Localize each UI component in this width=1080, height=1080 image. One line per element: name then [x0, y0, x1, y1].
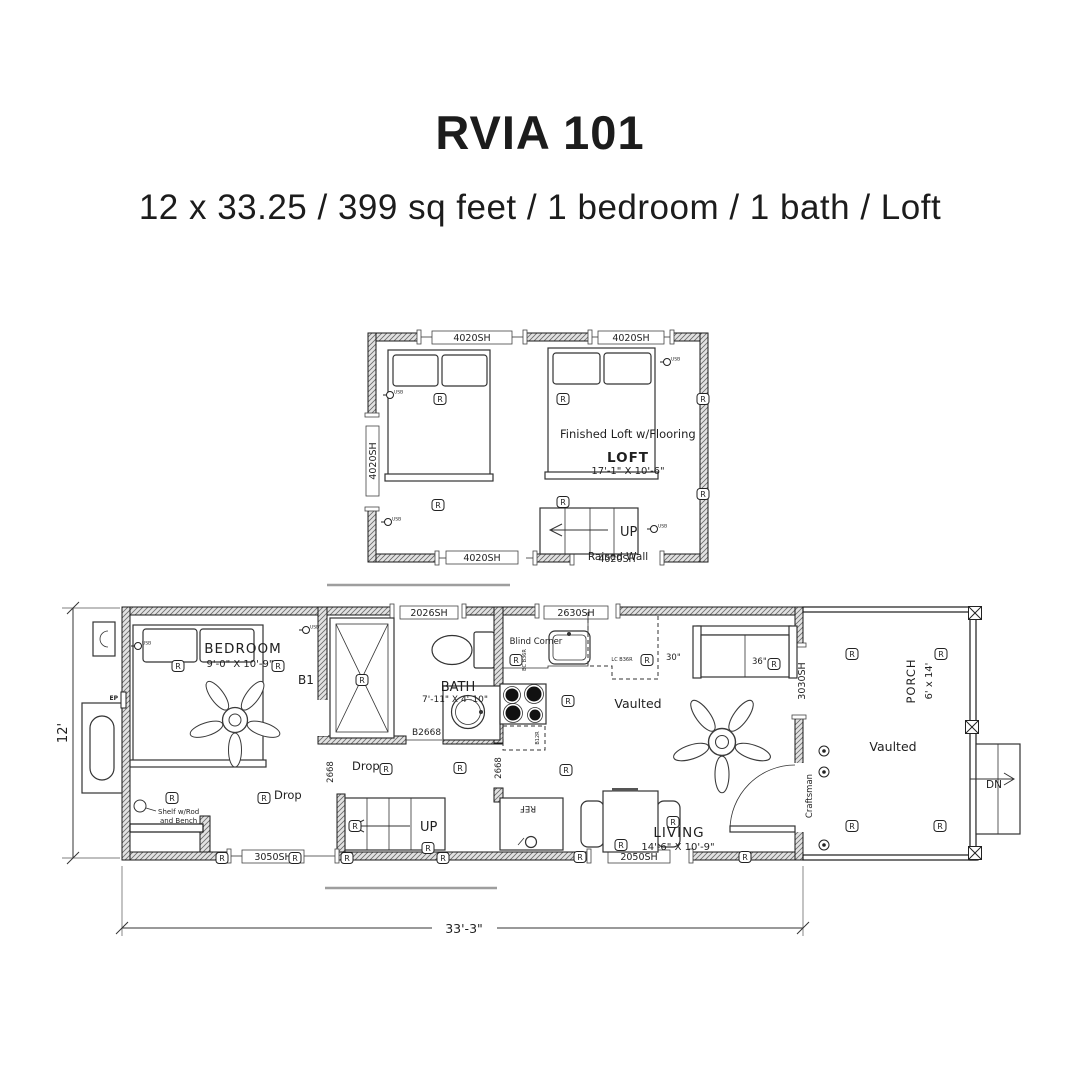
svg-text:3030SH: 3030SH [797, 662, 808, 699]
wall-closet [200, 816, 210, 852]
stove [500, 684, 546, 724]
main-wall-left [122, 607, 130, 860]
bedroom-label: BEDROOM [204, 641, 281, 657]
main-window-2630: 2630SH [535, 604, 620, 619]
svg-text:EP: EP [110, 695, 119, 702]
fridge-label: REF [520, 803, 536, 813]
porch-label: PORCH [904, 658, 918, 703]
loft-wall-right [700, 333, 708, 562]
svg-text:4020SH: 4020SH [463, 553, 500, 564]
svg-text:4020SH: 4020SH [368, 442, 379, 479]
loft-room-label: LOFT [607, 450, 649, 466]
cabinet-30-label: 30" [666, 653, 681, 663]
upper-cabinets-dashed [588, 612, 658, 679]
bath-door-tag: B2668 [406, 728, 442, 740]
living-label: LIVING [653, 825, 704, 841]
porch: PORCH 6' x 14' Vaulted DN [869, 658, 1020, 834]
svg-text:4020SH: 4020SH [612, 333, 649, 344]
closet-note-2: and Bench [160, 817, 197, 825]
sofa-size-label: 36" [752, 657, 767, 667]
bedroom-door-tag: B1 [298, 673, 314, 687]
loft-window-bottom-1: 4020SH [435, 551, 537, 565]
cabinet-b12r-label: B12R [535, 731, 541, 745]
exterior-fixture [82, 703, 122, 793]
loft-stairs: UP [540, 508, 638, 554]
drop-label-1: Drop [352, 759, 380, 773]
bath-dims: 7'-11" X 4'-10" [422, 695, 488, 705]
cabinet-lc36-label: LC B36R [611, 657, 633, 663]
loft-window-top-left: 4020SH [417, 330, 527, 344]
toilet [432, 632, 494, 668]
width-dim-label: 12' [56, 723, 71, 743]
wall-stair-left [337, 794, 345, 852]
drop-label-2: Drop [274, 788, 302, 802]
loft-window-left: 4020SH [365, 413, 379, 511]
cabinet-bc36-label: BC B36R [522, 649, 528, 671]
kitchen-sink [549, 631, 590, 664]
porch-vaulted-label: Vaulted [869, 739, 916, 754]
svg-text:3050SH: 3050SH [254, 852, 291, 863]
loft-window-top-right: 4020SH [588, 330, 674, 344]
blind-corner-label: Blind Corner [510, 637, 563, 647]
porch-dn-label: DN [986, 779, 1002, 791]
length-dim-label: 33'-3" [445, 921, 483, 936]
loft-raised-wall-label: Raised Wall [588, 551, 648, 563]
porch-rail-bottom [803, 855, 978, 860]
living-fan [672, 697, 773, 793]
loft-plan: 4020SH 4020SH 4020SH 4020SH 40 [365, 330, 709, 565]
entry-door-label: Craftsman [805, 774, 815, 818]
svg-text:B2668: B2668 [412, 728, 441, 738]
main-window-2026: 2026SH [390, 604, 466, 619]
dimension-length: 33'-3" [116, 866, 809, 936]
closet-note-1: Shelf w/Rod [158, 808, 199, 816]
bedroom-dims: 9'-0" X 10'-9" [207, 659, 274, 670]
svg-text:2026SH: 2026SH [410, 608, 447, 619]
porch-dims: 6' x 14' [924, 663, 935, 700]
svg-text:4020SH: 4020SH [453, 333, 490, 344]
floorplan-canvas: R USB [0, 0, 1080, 1080]
main-plan: 2026SH 2630SH 3050SH 2050SH 3030SH [82, 604, 1020, 864]
bedroom-closet: Shelf w/Rod and Bench [130, 800, 203, 832]
entry-door: Craftsman [730, 763, 815, 832]
exterior-meter [93, 622, 115, 656]
hall-door-tag-2: 2668 [494, 757, 504, 779]
loft-dims: 17'-1" X 10'-6" [591, 466, 664, 477]
loft-bed-left [385, 350, 493, 481]
porch-rail-top [803, 607, 978, 612]
fridge: REF [500, 798, 563, 850]
living-dims: 14'-6" X 10'-9" [641, 842, 714, 853]
loft-note: Finished Loft w/Flooring [560, 427, 696, 441]
bath-label: BATH [441, 680, 476, 695]
hall-door-tag-1: 2668 [326, 761, 336, 783]
bedroom-door-opening [317, 700, 328, 736]
loft-stairs-up-label: UP [620, 525, 638, 540]
kitchen-vaulted-label: Vaulted [614, 696, 661, 711]
main-window-3050: 3050SH [227, 849, 339, 863]
table-tag-smudge [612, 788, 638, 792]
svg-text:2050SH: 2050SH [620, 852, 657, 863]
sofa: 36" [693, 626, 797, 678]
main-stairs-up-label: UP [420, 820, 438, 835]
svg-text:2630SH: 2630SH [557, 608, 594, 619]
porch-steps: DN [970, 744, 1020, 834]
